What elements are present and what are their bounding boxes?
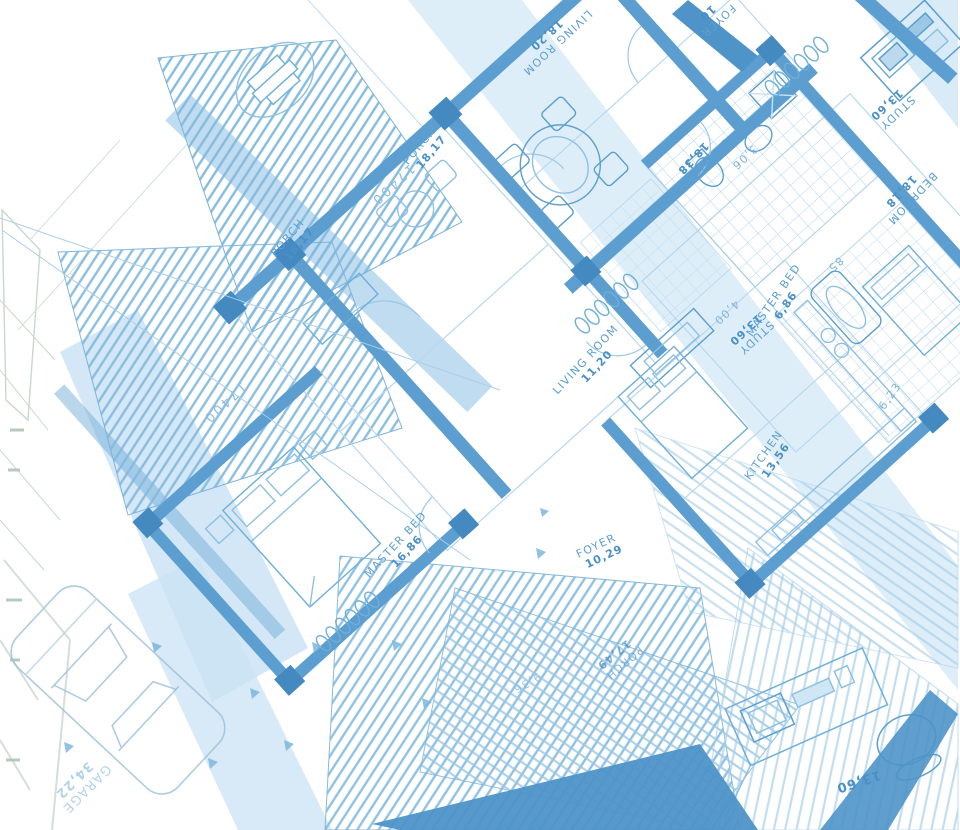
room-label-study-right-edge: STUDY 13,60: [864, 84, 921, 140]
blueprint-canvas: LIVING ROOM 18,20 FOYER 10 BEDROOM 18,38…: [0, 0, 960, 830]
room-label-living-room-center: LIVING ROOM 11,20: [547, 315, 635, 406]
room-label-foyer-center: FOYER 10,29: [572, 524, 628, 572]
blueprint-page: LIVING ROOM 18,20 FOYER 10 BEDROOM 18,38…: [0, 0, 960, 830]
